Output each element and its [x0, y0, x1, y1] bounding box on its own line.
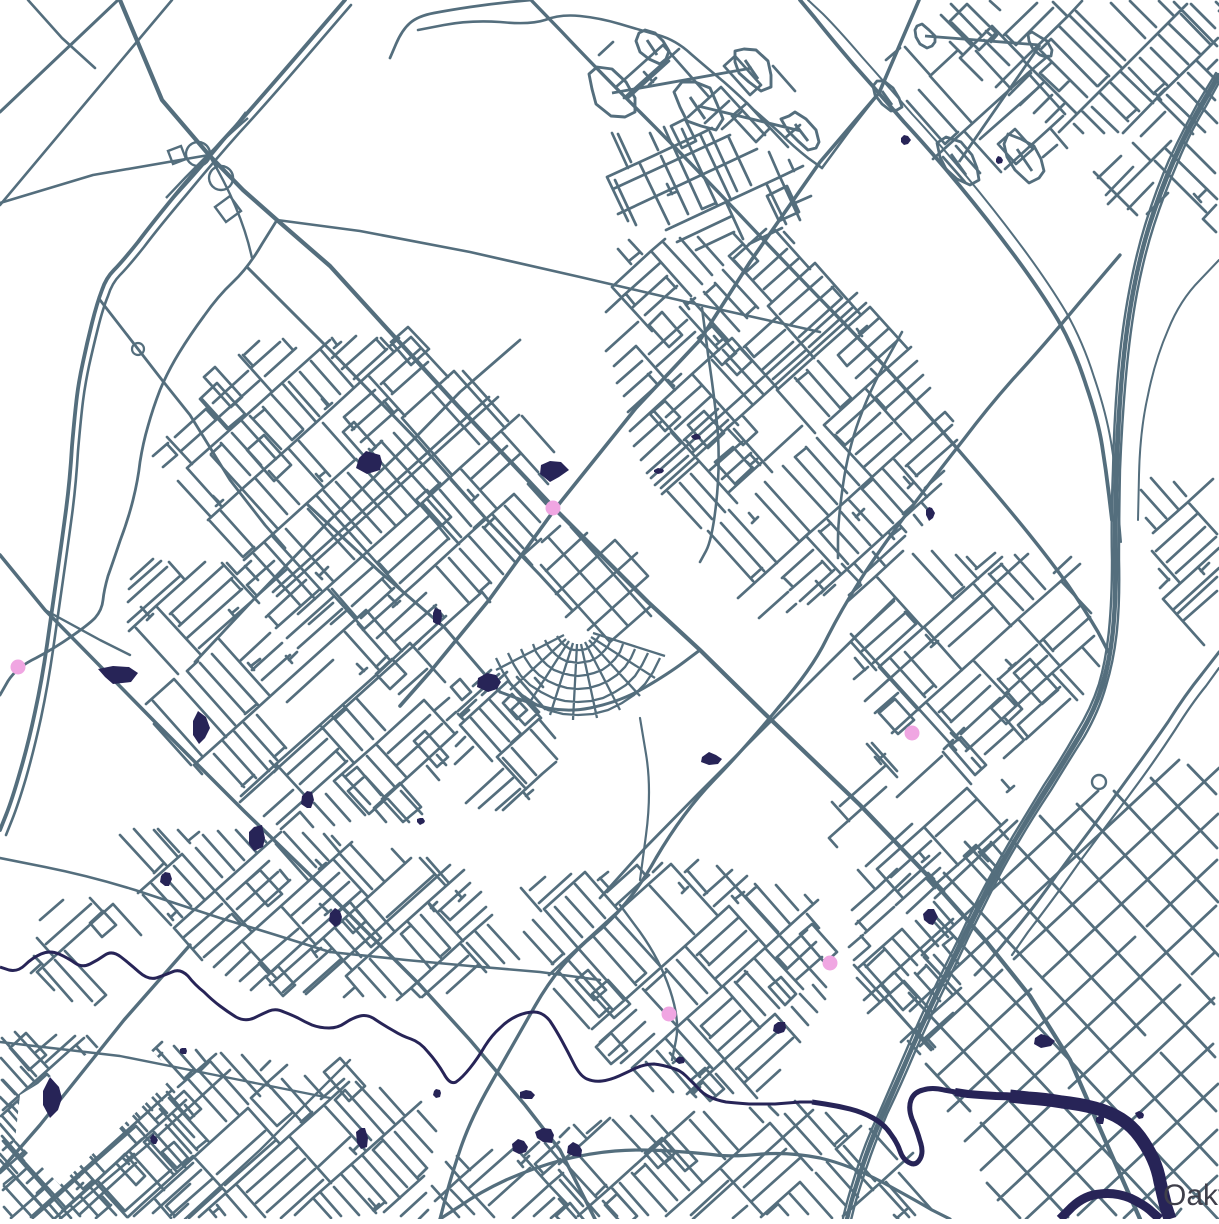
- svg-text:Oakville: Oakville: [1163, 1179, 1219, 1212]
